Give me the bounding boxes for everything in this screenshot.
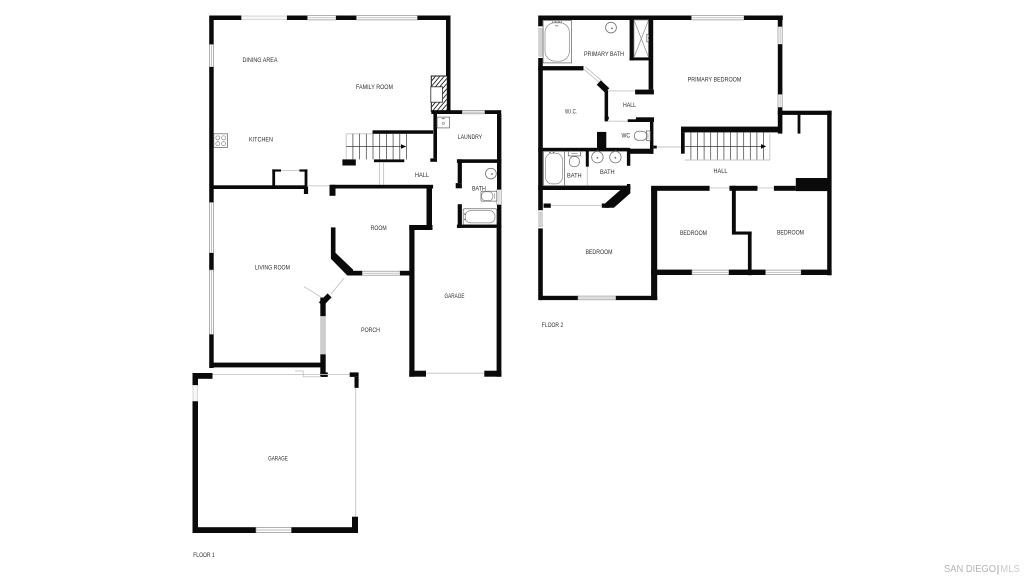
svg-text:SAN DIEGO: SAN DIEGO xyxy=(944,564,996,575)
svg-text:WC: WC xyxy=(622,132,631,139)
svg-text:GARAGE: GARAGE xyxy=(445,293,465,300)
svg-text:BATH: BATH xyxy=(600,169,615,176)
svg-text:KITCHEN: KITCHEN xyxy=(249,136,273,143)
svg-text:DINING AREA: DINING AREA xyxy=(243,57,279,64)
svg-text:BEDROOM: BEDROOM xyxy=(585,249,612,256)
svg-text:PORCH: PORCH xyxy=(361,327,380,334)
svg-text:PRIMARY BEDROOM: PRIMARY BEDROOM xyxy=(688,77,742,84)
svg-text:HALL: HALL xyxy=(415,172,429,179)
svg-text:BEDROOM: BEDROOM xyxy=(777,230,804,237)
svg-text:BEDROOM: BEDROOM xyxy=(680,230,707,237)
svg-text:FLOOR 2: FLOOR 2 xyxy=(542,322,564,329)
svg-text:FAMILY ROOM: FAMILY ROOM xyxy=(356,84,393,91)
svg-text:LIVING ROOM: LIVING ROOM xyxy=(255,264,290,271)
svg-text:BATH: BATH xyxy=(567,172,582,179)
svg-text:HALL: HALL xyxy=(623,102,636,109)
svg-text:FLOOR 1: FLOOR 1 xyxy=(193,552,215,559)
svg-text:GARAGE: GARAGE xyxy=(268,455,288,462)
svg-text:PRIMARY BATH: PRIMARY BATH xyxy=(584,51,624,58)
svg-text:LAUNDRY: LAUNDRY xyxy=(458,134,483,141)
svg-text:ROOM: ROOM xyxy=(371,225,387,232)
svg-text:|: | xyxy=(997,564,1000,575)
svg-text:HALL: HALL xyxy=(714,168,728,175)
svg-text:MLS: MLS xyxy=(1000,564,1020,575)
svg-text:W.I.C.: W.I.C. xyxy=(565,109,577,116)
